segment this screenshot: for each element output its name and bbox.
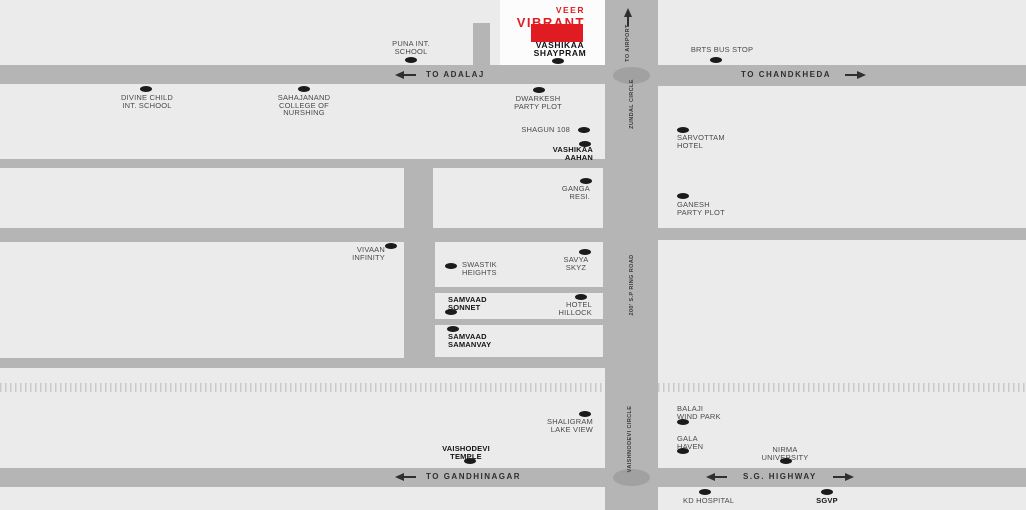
marker-dot-balaji	[677, 419, 689, 425]
marker-dot-ganesh	[677, 193, 689, 199]
right-arrow-icon	[833, 473, 854, 481]
project-name: VASHIKAA SHAYPRAM	[534, 42, 587, 57]
marker-dot-vaishodevi	[464, 458, 476, 464]
landmark-sarvottam-hotel: SARVOTTAM HOTEL	[677, 134, 725, 149]
road-label-to-adalaj: TO ADALAJ	[395, 71, 485, 79]
marker-dot-dwarkesh	[533, 87, 545, 93]
logo-veer: VEER	[500, 6, 585, 15]
landmark-divine-child-school: DIVINE CHILD INT. SCHOOL	[121, 94, 173, 109]
block-row3-left	[0, 168, 404, 228]
marker-dot-brts	[710, 57, 722, 63]
landmark-sahajanand-college: SAHAJANAND COLLEGE OF NURSHING	[278, 94, 330, 117]
marker-dot-swastik	[445, 263, 457, 269]
left-arrow-icon	[395, 473, 416, 481]
road-label-vaishnodevi-circle: VAISHNODEVI CIRCLE	[627, 406, 633, 473]
landmark-brts-bus-stop: BRTS BUS STOP	[691, 46, 753, 54]
road-label-to-gandhinagar: TO GANDHINAGAR	[395, 473, 521, 481]
marker-dot-sarvottam	[677, 127, 689, 133]
marker-dot-shagun	[578, 127, 590, 133]
marker-dot-savya	[579, 249, 591, 255]
railway-line-left	[0, 383, 605, 392]
landmark-sgvp: SGVP	[816, 497, 838, 505]
left-arrow-icon	[706, 473, 727, 481]
landmark-shaligram-lake-view: SHALIGRAM LAKE VIEW	[547, 418, 593, 433]
marker-dot-gala	[677, 448, 689, 454]
landmark-swastik-heights: SWASTIK HEIGHTS	[462, 261, 497, 276]
landmark-savya-skyz: SAVYA SKYZ	[564, 256, 589, 271]
landmark-vashikaa-aahan: VASHIKAA AAHAN	[553, 146, 593, 161]
road-label-sp-ring-road: 200' S.P RING ROAD	[629, 255, 635, 316]
block-row4-left	[0, 242, 404, 358]
to-chandkheda-text: TO CHANDKHEDA	[741, 71, 831, 79]
marker-dot-sgvp	[821, 489, 833, 495]
landmark-shagun-108: SHAGUN 108	[521, 126, 570, 134]
access-road	[473, 23, 490, 65]
location-map: VEER VIBRANT VASHIKAA SHAYPRAM TO ADALAJ…	[0, 0, 1026, 510]
block-top-right	[658, 0, 1026, 65]
landmark-ganga-resi: GANGA RESI.	[562, 185, 590, 200]
road-label-to-airport: TO AIRPORT	[625, 24, 631, 62]
landmark-balaji-wind-park: BALAJI WIND PARK	[677, 405, 721, 420]
railway-line-right	[658, 383, 1026, 392]
landmark-hotel-hillock: HOTEL HILLOCK	[559, 301, 593, 316]
road-label-sg-highway: S.G. HIGHWAY	[706, 473, 854, 481]
marker-dot-nirma	[780, 458, 792, 464]
marker-dot-vashikaa-aahan	[579, 141, 591, 147]
sg-highway-text: S.G. HIGHWAY	[743, 473, 817, 481]
marker-dot-hillock	[575, 294, 587, 300]
project-marker-dot	[552, 58, 564, 64]
landmark-vivaan-infinity: VIVAAN INFINITY	[352, 246, 385, 261]
marker-dot-puna	[405, 57, 417, 63]
landmark-puna-int-school: PUNA INT. SCHOOL	[392, 40, 430, 55]
landmark-dwarkesh-party-plot: DWARKESH PARTY PLOT	[514, 95, 562, 110]
marker-dot-ganga	[580, 178, 592, 184]
block-right-lower	[658, 240, 1026, 468]
marker-dot-shaligram	[579, 411, 591, 417]
road-label-to-chandkheda: TO CHANDKHEDA	[741, 71, 866, 79]
road-label-zundal-circle: ZUNDAL CIRCLE	[629, 79, 635, 129]
marker-dot-vivaan	[385, 243, 397, 249]
marker-dot-kd	[699, 489, 711, 495]
block-bottom-left-strip	[0, 487, 605, 510]
landmark-kd-hospital: KD HOSPITAL	[683, 497, 734, 505]
right-arrow-icon	[845, 71, 866, 79]
marker-dot-sonnet	[445, 309, 457, 315]
landmark-samvaad-samanvay: SAMVAAD SAMANVAY	[448, 333, 491, 348]
marker-dot-divine	[140, 86, 152, 92]
to-gandhinagar-text: TO GANDHINAGAR	[426, 473, 521, 481]
to-adalaj-text: TO ADALAJ	[426, 71, 485, 79]
left-arrow-icon	[395, 71, 416, 79]
marker-dot-sahajanand	[298, 86, 310, 92]
landmark-ganesh-party-plot: GANESH PARTY PLOT	[677, 201, 725, 216]
marker-dot-samanvay	[447, 326, 459, 332]
